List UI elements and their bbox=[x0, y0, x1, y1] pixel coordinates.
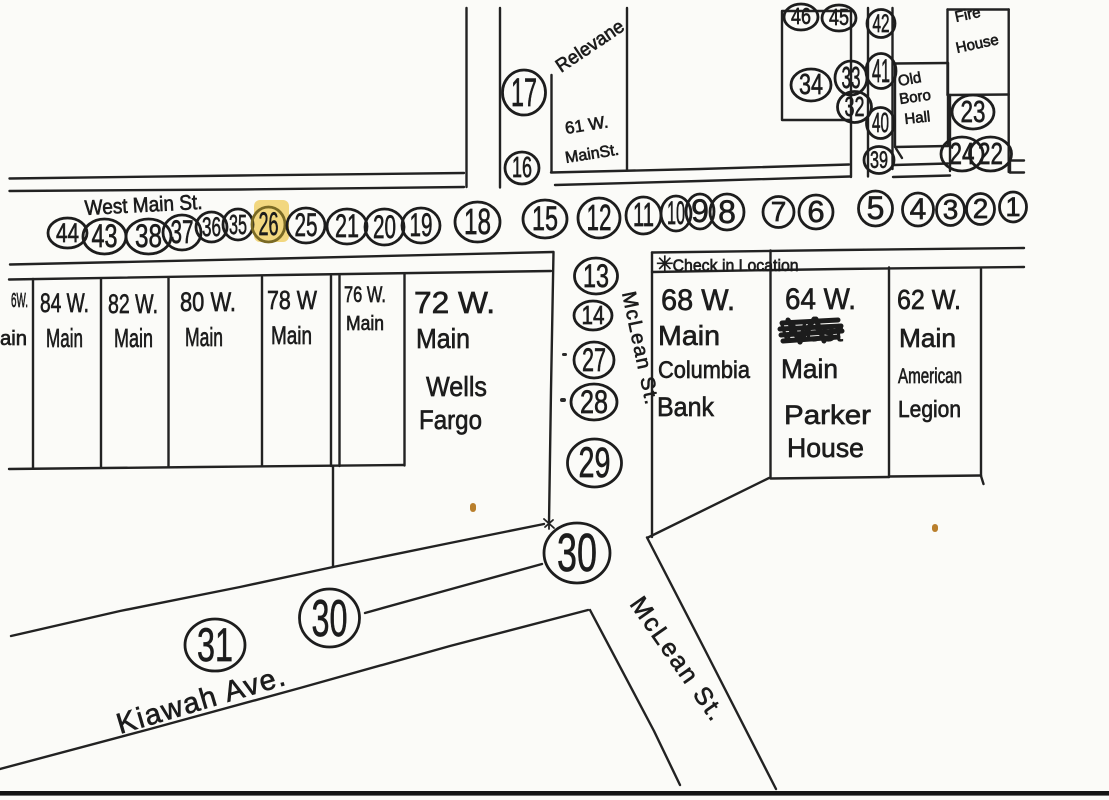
svg-text:8: 8 bbox=[718, 194, 736, 230]
svg-text:1: 1 bbox=[1005, 192, 1020, 222]
svg-text:Hall: Hall bbox=[904, 108, 931, 128]
svg-text:9: 9 bbox=[691, 193, 709, 229]
svg-text:45: 45 bbox=[829, 4, 849, 30]
svg-text:26: 26 bbox=[259, 206, 279, 242]
svg-text:21: 21 bbox=[335, 208, 359, 244]
svg-text:44: 44 bbox=[56, 218, 79, 248]
svg-text:2: 2 bbox=[973, 193, 989, 224]
svg-text:20: 20 bbox=[373, 209, 396, 245]
svg-text:68 W.: 68 W. bbox=[661, 284, 735, 317]
svg-text:18: 18 bbox=[464, 201, 491, 242]
svg-text:27: 27 bbox=[582, 342, 606, 378]
svg-text:Wells: Wells bbox=[426, 371, 487, 402]
svg-text:Main: Main bbox=[346, 313, 384, 335]
svg-text:30: 30 bbox=[312, 590, 348, 648]
svg-text:41: 41 bbox=[872, 53, 890, 89]
svg-text:14: 14 bbox=[582, 300, 605, 330]
svg-text:16: 16 bbox=[512, 152, 532, 184]
svg-text:6W.: 6W. bbox=[11, 290, 28, 312]
svg-text:6: 6 bbox=[807, 194, 824, 229]
svg-text:19: 19 bbox=[410, 207, 433, 243]
svg-text:Main: Main bbox=[46, 323, 83, 353]
svg-text:39: 39 bbox=[870, 147, 888, 174]
svg-text:Main: Main bbox=[658, 320, 720, 351]
svg-text:76 W.: 76 W. bbox=[344, 282, 386, 307]
svg-text:80 W.: 80 W. bbox=[180, 287, 236, 317]
svg-text:ain: ain bbox=[0, 328, 27, 350]
svg-text:10: 10 bbox=[667, 195, 685, 231]
svg-text:✳Check in Location: ✳Check in Location bbox=[656, 253, 799, 276]
svg-text:Main: Main bbox=[416, 323, 470, 354]
svg-text:Bank: Bank bbox=[657, 392, 714, 422]
svg-text:23: 23 bbox=[961, 94, 986, 129]
svg-text:Main: Main bbox=[271, 322, 312, 350]
svg-text:Columbia: Columbia bbox=[658, 357, 751, 384]
svg-text:82 W.: 82 W. bbox=[108, 289, 158, 319]
svg-text:46: 46 bbox=[791, 3, 811, 29]
svg-text:78 W: 78 W bbox=[267, 285, 317, 315]
svg-text:37: 37 bbox=[171, 214, 194, 250]
svg-text:30: 30 bbox=[557, 523, 597, 583]
svg-text:5: 5 bbox=[867, 190, 885, 226]
svg-text:Main: Main bbox=[899, 323, 956, 353]
svg-text:American: American bbox=[898, 365, 962, 388]
svg-text:32: 32 bbox=[845, 91, 865, 122]
svg-text:62 W.: 62 W. bbox=[897, 284, 961, 315]
svg-text:Legion: Legion bbox=[898, 396, 961, 422]
svg-text:12: 12 bbox=[587, 197, 612, 238]
svg-text:35: 35 bbox=[229, 209, 247, 240]
svg-text:84 W.: 84 W. bbox=[40, 288, 89, 318]
svg-text:38: 38 bbox=[135, 218, 162, 254]
svg-text:Main: Main bbox=[114, 323, 153, 353]
svg-text:13: 13 bbox=[583, 258, 609, 294]
svg-text:17: 17 bbox=[511, 71, 537, 115]
svg-text:Fargo: Fargo bbox=[419, 405, 482, 435]
svg-text:7: 7 bbox=[771, 196, 787, 227]
svg-text:34: 34 bbox=[799, 69, 823, 101]
svg-text:Parker: Parker bbox=[784, 400, 871, 430]
svg-text:31: 31 bbox=[197, 618, 233, 671]
svg-text:29: 29 bbox=[579, 439, 611, 487]
svg-text:Main: Main bbox=[185, 322, 223, 352]
svg-text:4: 4 bbox=[910, 193, 927, 226]
svg-text:72 W.: 72 W. bbox=[414, 285, 495, 320]
svg-text:3: 3 bbox=[943, 194, 959, 225]
svg-text:24: 24 bbox=[950, 136, 975, 171]
svg-text:28: 28 bbox=[580, 384, 608, 420]
svg-text:House: House bbox=[787, 433, 864, 463]
svg-text:42: 42 bbox=[873, 10, 890, 38]
svg-text:43: 43 bbox=[92, 218, 118, 254]
svg-text:25: 25 bbox=[295, 207, 318, 243]
svg-text:11: 11 bbox=[633, 196, 654, 233]
svg-text:36: 36 bbox=[202, 212, 221, 242]
svg-text:22: 22 bbox=[978, 136, 1003, 171]
svg-text:64 W.: 64 W. bbox=[785, 283, 856, 316]
svg-text:Main: Main bbox=[781, 354, 838, 384]
svg-text:33: 33 bbox=[842, 60, 861, 95]
svg-text:15: 15 bbox=[532, 200, 558, 238]
svg-text:40: 40 bbox=[872, 107, 889, 138]
